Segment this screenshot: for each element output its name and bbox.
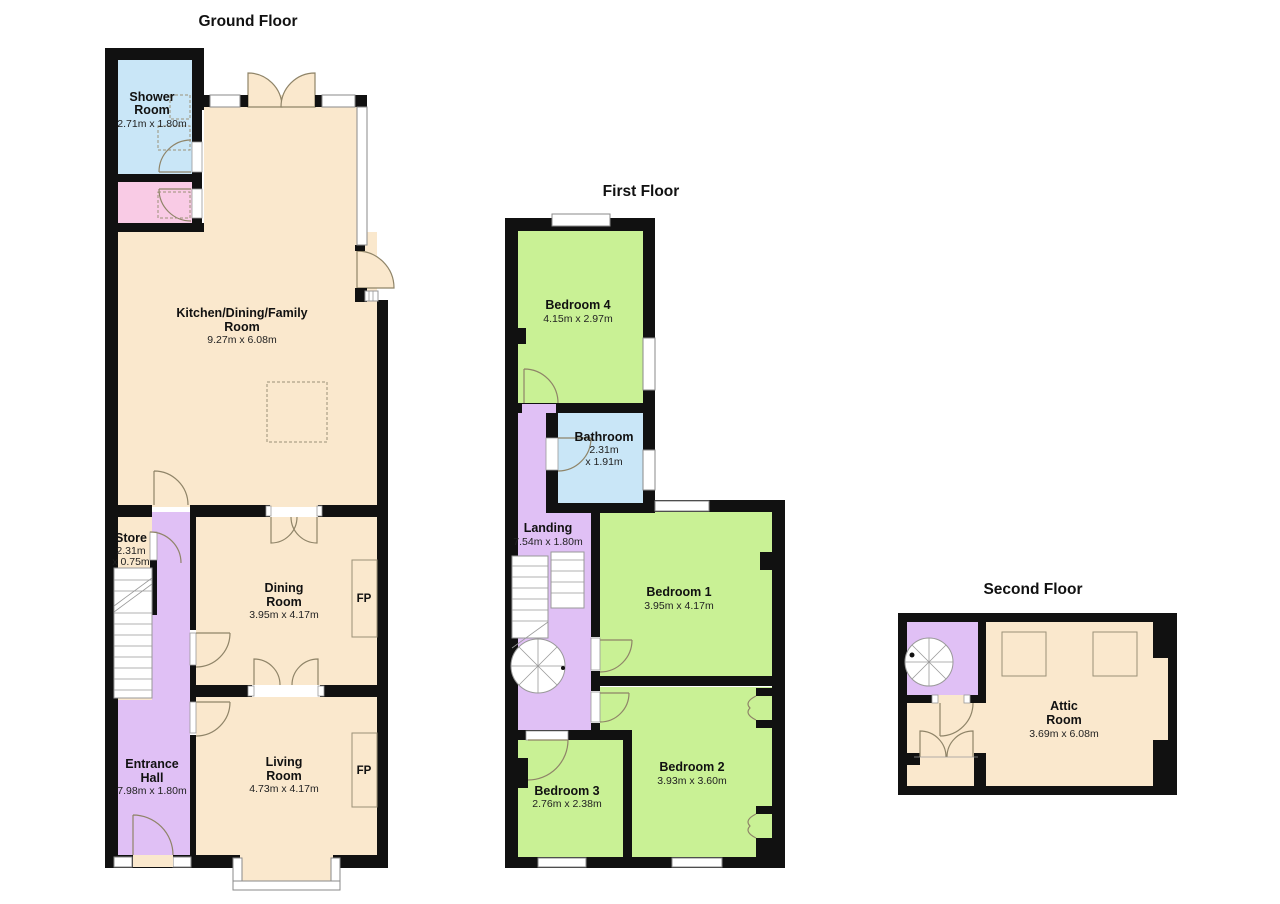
room-dims: 4.15m x 2.97m <box>543 313 613 325</box>
window <box>538 858 586 867</box>
room-dims: 2.31m <box>589 444 618 456</box>
spiral-staircase <box>905 638 953 686</box>
room-dims: 2.76m x 2.38m <box>532 798 602 810</box>
radiator-icon <box>365 291 378 301</box>
window <box>643 450 655 490</box>
ground-floor-plan: Ground Floor Shower Room 2.71m x 1.80m K… <box>105 13 394 890</box>
room-label: Room <box>266 769 301 783</box>
doorway <box>526 731 568 740</box>
room-label: Dining <box>265 581 304 595</box>
staircase-run <box>551 552 584 608</box>
room-dims: x 0.75m <box>112 556 150 568</box>
floor-title-ground: Ground Floor <box>198 13 297 30</box>
window <box>322 95 355 107</box>
floor-title-first: First Floor <box>603 183 680 200</box>
room-label: Bedroom 3 <box>534 784 599 798</box>
doorway <box>192 189 202 218</box>
doorway <box>248 686 254 696</box>
room-label: Room <box>1046 713 1081 727</box>
room-label: Entrance <box>125 757 179 771</box>
room-label: Room <box>134 103 169 117</box>
doorway <box>964 695 970 703</box>
window <box>672 858 722 867</box>
front-doorway <box>133 855 173 867</box>
room-utility-pink <box>118 182 196 223</box>
bay-window-floor <box>238 855 335 883</box>
window <box>655 501 709 511</box>
room-dims: 7.98m x 1.80m <box>117 785 187 797</box>
room-label: Landing <box>524 521 573 535</box>
fireplace-label: FP <box>357 765 372 777</box>
room-label: Hall <box>141 771 164 785</box>
floorplan-page: Ground Floor Shower Room 2.71m x 1.80m K… <box>0 0 1280 904</box>
bay-window-frame <box>233 881 340 890</box>
window <box>357 107 367 245</box>
doorway <box>522 404 556 413</box>
room-label: Store <box>115 531 147 545</box>
side-door-swing <box>357 251 394 288</box>
floorplan-drawing: Ground Floor Shower Room 2.71m x 1.80m K… <box>0 0 1280 904</box>
room-dims: 4.73m x 4.17m <box>249 783 319 795</box>
room-label: Bathroom <box>574 430 633 444</box>
window <box>210 95 240 107</box>
doorway <box>591 692 600 722</box>
sidelight-window <box>114 857 132 867</box>
room-kitchen-lower <box>118 232 377 507</box>
window <box>643 338 655 390</box>
room-dims: 2.71m x 1.80m <box>117 118 187 130</box>
sidelight-window <box>173 857 191 867</box>
room-kitchen <box>204 107 357 232</box>
doorway <box>266 506 271 516</box>
room-label: Bedroom 1 <box>646 585 711 599</box>
room-dims: 3.69m x 6.08m <box>1029 728 1099 740</box>
spiral-staircase <box>511 639 565 693</box>
room-label: Room <box>266 595 301 609</box>
doorway <box>190 633 196 665</box>
window <box>552 214 610 226</box>
room-label: Bedroom 4 <box>545 298 610 312</box>
room-label: Living <box>266 755 303 769</box>
staircase <box>114 568 152 698</box>
room-label: Bedroom 2 <box>659 760 724 774</box>
doorway <box>190 702 196 733</box>
room-label: Room <box>224 320 259 334</box>
second-floor-plan: Second Floor Attic Room 3.69m x 6.08m <box>898 581 1177 795</box>
room-dims: x 1.91m <box>585 456 623 468</box>
room-dims: 3.93m x 3.60m <box>657 775 727 787</box>
room-shower <box>118 60 196 174</box>
room-label: Attic <box>1050 699 1078 713</box>
room-label: Kitchen/Dining/Family <box>176 306 307 320</box>
doorway <box>932 695 938 703</box>
first-floor-plan: First Floor Bedroom 4 4.15m x 2.97m Bath… <box>505 183 785 868</box>
fireplace-label: FP <box>357 593 372 605</box>
room-dims: 3.95m x 4.17m <box>644 600 714 612</box>
room-dims: 3.95m x 4.17m <box>249 609 319 621</box>
doorway <box>591 638 600 670</box>
doorway <box>318 686 324 696</box>
french-door-right-leaf <box>281 73 315 107</box>
room-label: Shower <box>129 90 174 104</box>
room-dims: 9.27m x 6.08m <box>207 334 277 346</box>
floor-title-second: Second Floor <box>983 581 1082 598</box>
room-dims: 7.54m x 1.80m <box>513 536 583 548</box>
doorway <box>150 532 157 560</box>
doorway <box>192 142 202 172</box>
french-door-left-leaf <box>248 73 282 107</box>
doorway <box>317 506 322 516</box>
doorway <box>546 438 558 470</box>
